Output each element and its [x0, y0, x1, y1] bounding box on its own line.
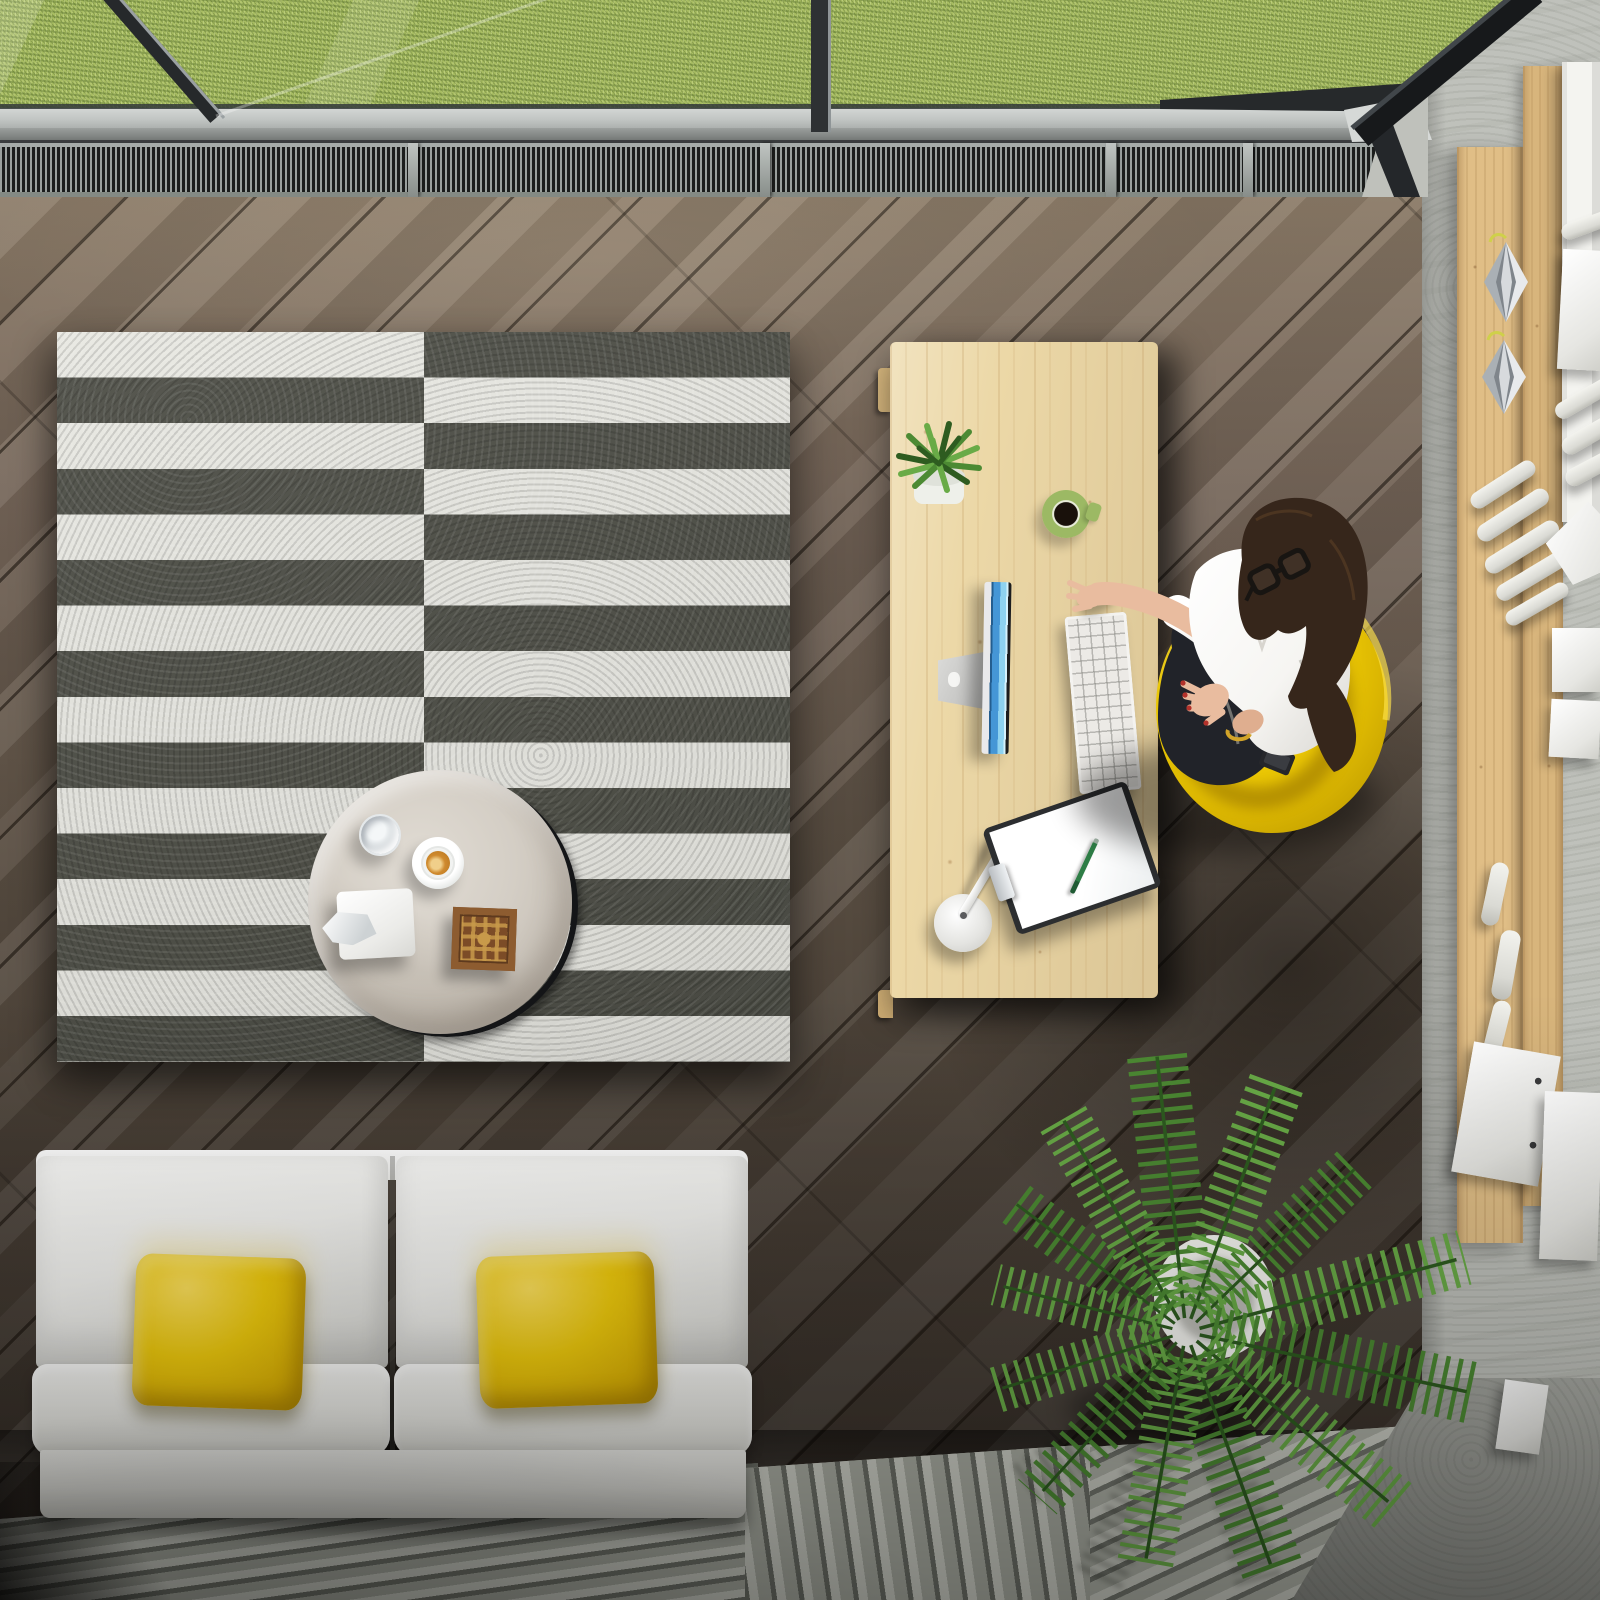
desk-succulent: [894, 418, 984, 512]
yellow-pillow-left: [131, 1253, 306, 1411]
desk-lamp-joint: [960, 912, 967, 919]
glass-edge-reflection: [216, 0, 560, 116]
ornament-string: [1490, 235, 1506, 242]
monitor-stand-hole: [948, 672, 960, 687]
silver-ornaments: [1472, 232, 1542, 442]
window-frame: [0, 0, 1600, 220]
window-mullion-center: [811, 0, 828, 132]
window-mullion-left: [108, 0, 216, 118]
white-box: [1557, 249, 1600, 371]
white-box: [1539, 1091, 1600, 1261]
carved-wooden-box: [451, 907, 517, 971]
coffee-table: [290, 750, 600, 1060]
sofa: [28, 1150, 758, 1530]
ornament-string: [1488, 333, 1504, 340]
computer-monitor: [982, 582, 1012, 754]
white-book-stack: [1552, 628, 1600, 692]
water-glass: [359, 814, 401, 856]
sofa-base: [40, 1450, 746, 1518]
cappuccino: [426, 851, 450, 875]
tissue-box: [336, 888, 415, 960]
window-frame-diagonal: [1360, 0, 1534, 136]
white-book-stack: [1549, 699, 1600, 760]
geodesic-ornament-2: [1482, 340, 1526, 414]
yellow-pillow-right: [475, 1251, 658, 1409]
coffee-mug: [1042, 490, 1090, 538]
geodesic-ornament-1: [1484, 242, 1528, 322]
mullion-center-highlight: [828, 0, 831, 132]
room-top-view: Top-down 3D rendering of a modern home o…: [0, 0, 1600, 1600]
